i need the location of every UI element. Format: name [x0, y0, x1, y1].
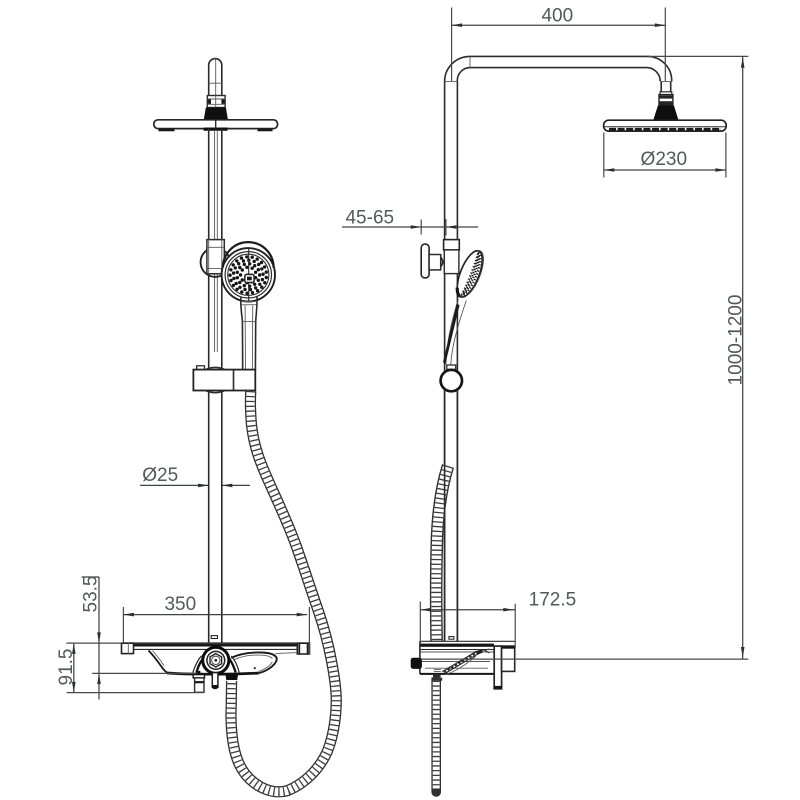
svg-text:53.5: 53.5 [81, 576, 102, 613]
svg-text:91.5: 91.5 [56, 649, 77, 686]
svg-text:Ø25: Ø25 [142, 465, 178, 486]
svg-text:400: 400 [541, 6, 573, 27]
svg-text:Ø230: Ø230 [641, 149, 687, 170]
svg-text:172.5: 172.5 [529, 589, 577, 610]
svg-text:350: 350 [164, 594, 196, 615]
svg-text:1000-1200: 1000-1200 [726, 295, 747, 386]
svg-text:45-65: 45-65 [345, 207, 394, 228]
